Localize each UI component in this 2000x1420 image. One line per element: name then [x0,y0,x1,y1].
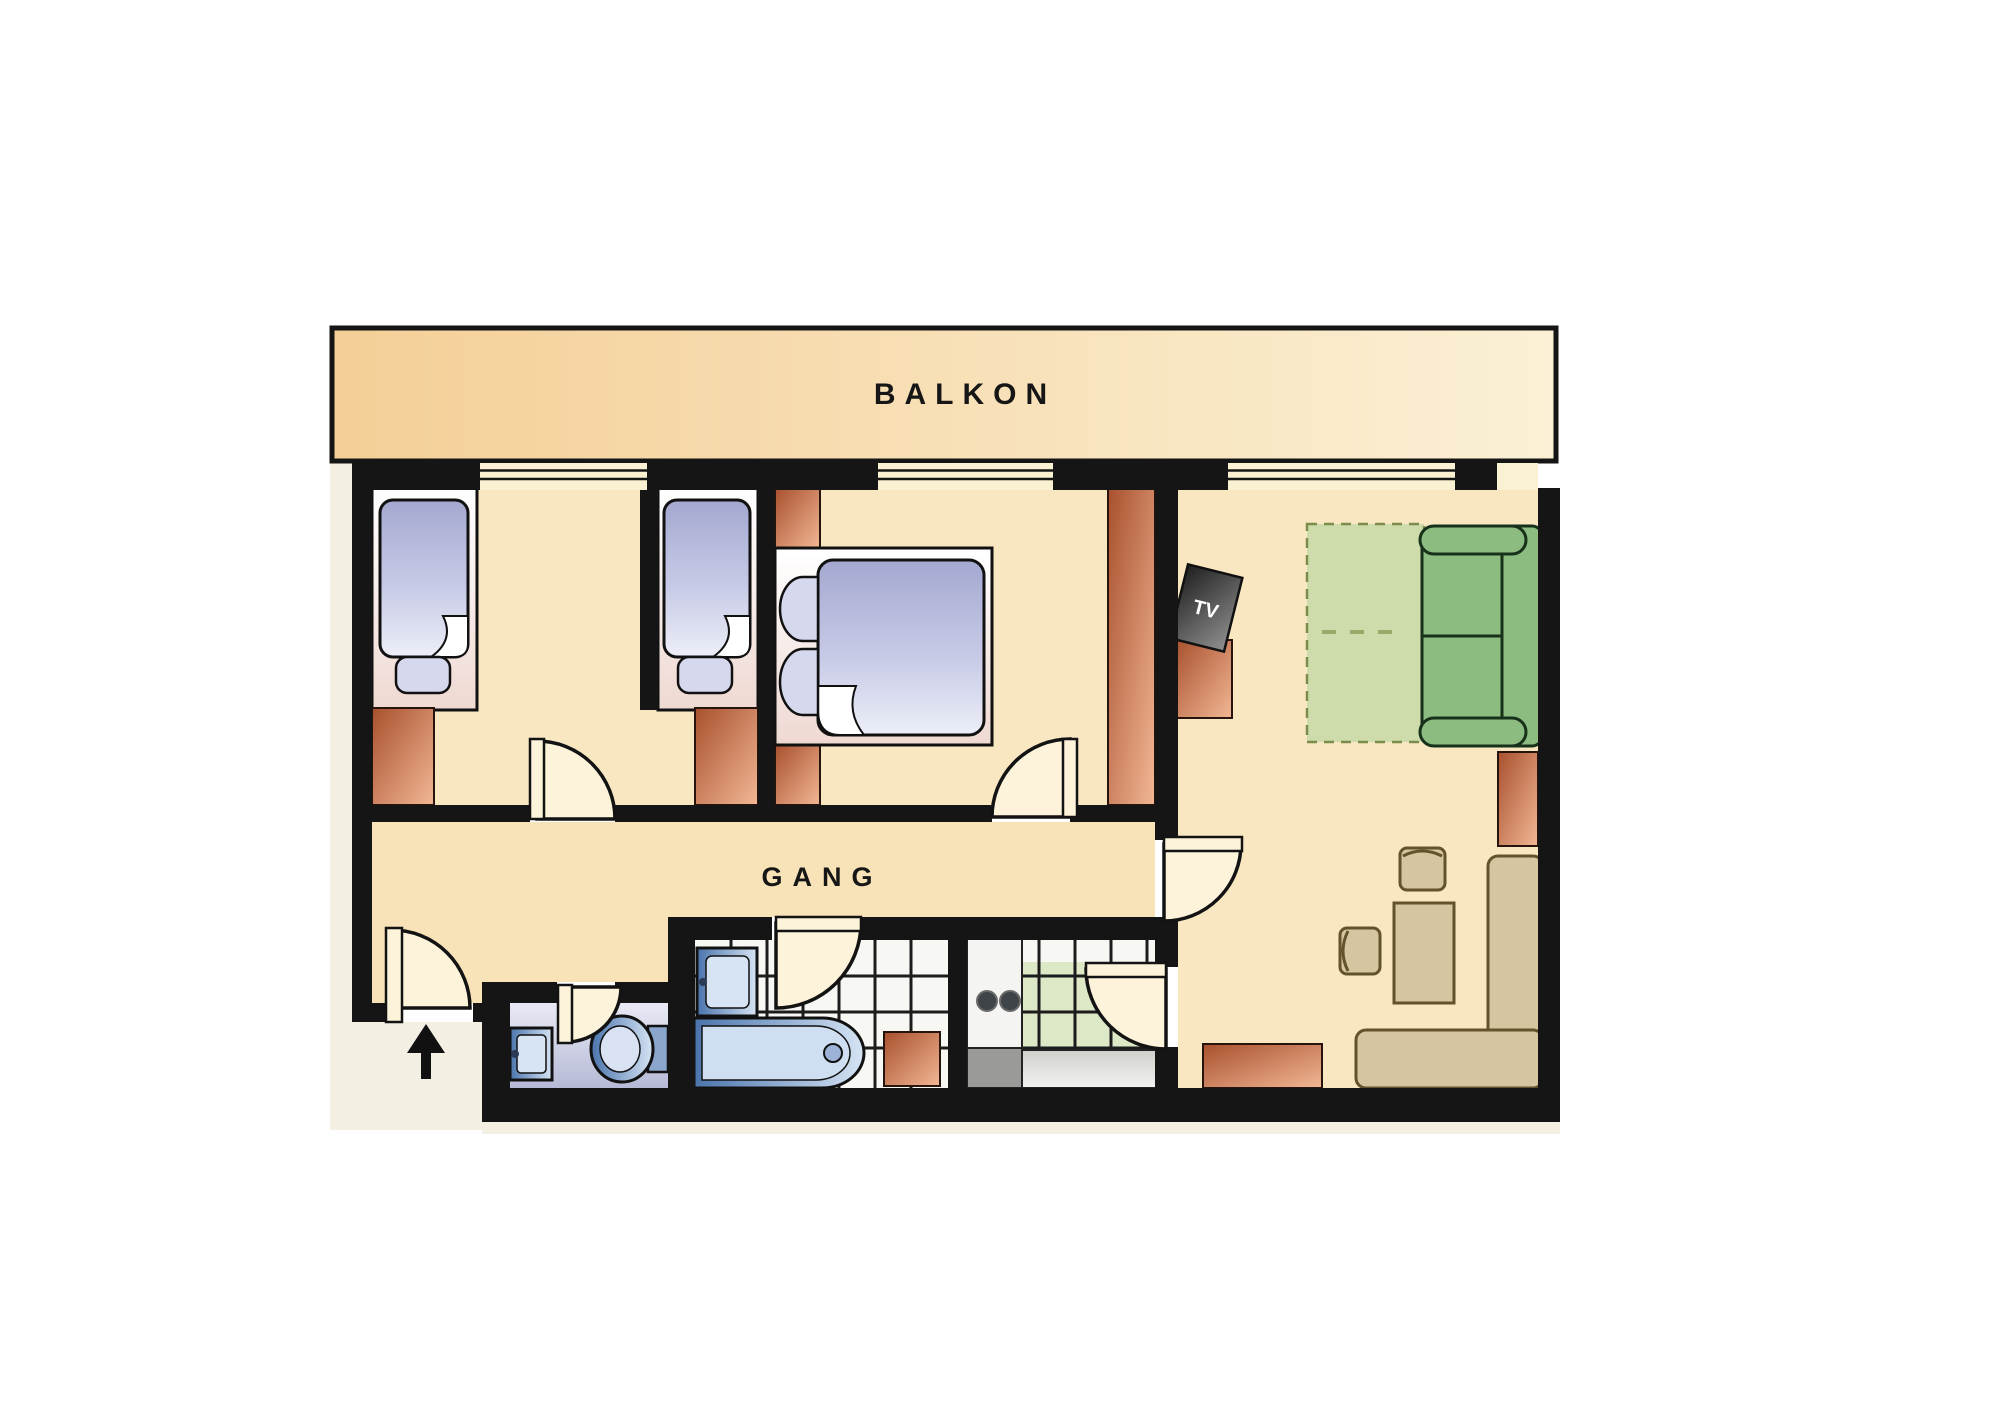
sideboard [1498,752,1538,846]
balcony-door-double-bedroom [878,463,1053,490]
wardrobe-twin-right [695,708,758,805]
window-corner-notch [1497,463,1538,490]
bathtub [694,1018,864,1088]
wall-bath-kitchen-divider [948,940,967,1088]
sofa-backrest [1502,526,1542,746]
double-bed-pillow-1 [780,577,818,641]
wall-right-outer [1538,488,1560,1122]
outside-bottom-strip [482,1122,1560,1134]
wall-bottom-outer [482,1088,1560,1122]
wall-wc-left [482,982,510,1088]
wall-left-outer [352,463,372,1022]
floor-plan-page: BALKON [0,0,2000,1420]
wardrobe-double-bottom [775,745,820,805]
stool-left [1340,928,1380,974]
hallway-label: GANG [762,862,883,892]
floor-plan-drawing: BALKON [0,0,2000,1420]
double-bed-pillow-2 [780,649,818,715]
stove-burner-left [977,991,997,1011]
windows [480,463,1538,490]
wardrobe-double-right [1108,488,1155,805]
living-room-floor-chest [1203,1044,1322,1088]
balcony: BALKON [332,328,1556,461]
kitchen-counter [1022,1050,1160,1088]
rug [1307,524,1424,742]
wall-twin-divider [640,488,658,710]
stove-unit-base [967,1048,1022,1088]
bathroom-sink [697,948,757,1016]
window-twin-bedroom [480,463,647,490]
sofa-seat-bottom [1422,636,1508,724]
wall-twin-double [758,488,775,822]
wall-wc-bath-divider [668,917,695,1088]
outside-left-strip [330,463,354,1130]
bed-1-pillow [396,657,450,693]
hallway-wc-nook-floor [510,917,668,982]
bed-2-pillow [678,657,732,693]
sofa-armrest-top [1420,526,1526,554]
wardrobe-twin-left [372,708,434,805]
wardrobe-double-top [775,488,820,548]
balcony-door-living-room [1228,463,1455,490]
stool-top [1400,848,1445,890]
bath-mat [884,1032,940,1086]
bathtub-drain [824,1044,842,1062]
stove-burner-right [1000,991,1020,1011]
sofa-seat-top [1422,548,1508,636]
dining-table [1394,903,1454,1003]
corner-bench-horizontal [1356,1030,1543,1088]
wc-sink [510,1028,552,1080]
sofa-armrest-bottom [1420,718,1526,746]
sofa [1420,526,1542,746]
balcony-label: BALKON [874,378,1056,411]
